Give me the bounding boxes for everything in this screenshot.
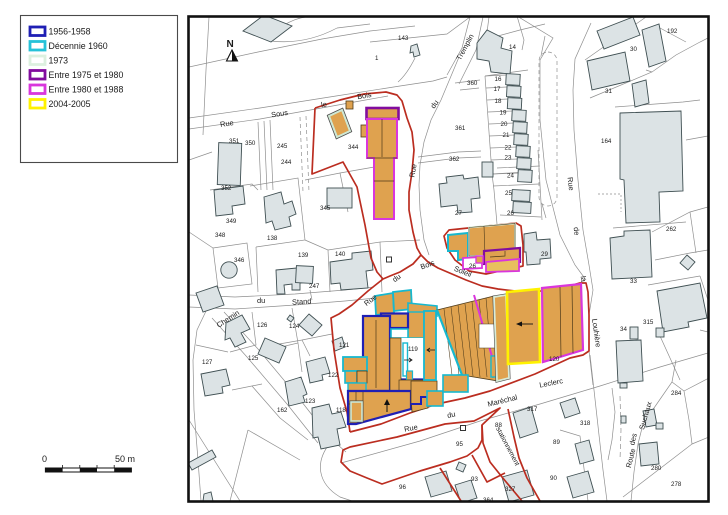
svg-text:245: 245 (277, 143, 288, 150)
svg-text:315: 315 (643, 319, 654, 326)
svg-text:du: du (257, 296, 265, 305)
svg-text:362: 362 (449, 156, 460, 163)
svg-text:16: 16 (495, 76, 502, 83)
svg-text:1973: 1973 (49, 56, 69, 66)
svg-text:N: N (227, 39, 234, 50)
svg-text:21: 21 (503, 132, 510, 139)
svg-text:348: 348 (215, 232, 226, 239)
svg-text:318: 318 (580, 420, 591, 427)
svg-text:le: le (320, 100, 327, 110)
svg-text:du: du (428, 98, 440, 110)
svg-text:20: 20 (501, 121, 508, 128)
svg-text:18: 18 (495, 98, 502, 105)
svg-text:164: 164 (601, 138, 612, 145)
svg-text:361: 361 (455, 125, 466, 132)
svg-text:27: 27 (455, 210, 462, 217)
svg-text:118: 118 (336, 407, 346, 414)
svg-text:247: 247 (309, 283, 320, 290)
svg-text:127: 127 (202, 359, 213, 366)
svg-text:24: 24 (507, 173, 514, 180)
svg-text:22: 22 (505, 145, 512, 152)
svg-text:du: du (391, 272, 403, 284)
svg-text:352: 352 (221, 185, 232, 192)
svg-text:345: 345 (320, 205, 331, 212)
svg-text:Louhière: Louhière (590, 318, 603, 348)
svg-text:Sous: Sous (270, 108, 288, 120)
svg-text:Rue: Rue (219, 118, 234, 129)
svg-text:126: 126 (257, 322, 268, 329)
svg-text:Rue: Rue (407, 163, 418, 178)
svg-text:Maréchal: Maréchal (487, 393, 519, 409)
svg-text:96: 96 (399, 484, 406, 491)
svg-text:26: 26 (507, 210, 514, 217)
svg-text:138: 138 (267, 235, 278, 242)
svg-text:327: 327 (505, 486, 516, 493)
svg-text:284: 284 (671, 390, 682, 397)
svg-text:17: 17 (494, 86, 501, 93)
svg-text:119: 119 (408, 346, 418, 353)
svg-text:1956-1958: 1956-1958 (49, 27, 91, 37)
svg-text:123: 123 (305, 398, 316, 405)
svg-text:Stand: Stand (292, 297, 312, 307)
svg-text:350: 350 (245, 140, 256, 147)
svg-text:89: 89 (553, 439, 560, 446)
svg-text:143: 143 (398, 35, 409, 42)
svg-text:29: 29 (541, 251, 548, 258)
svg-text:Route: Route (624, 447, 638, 468)
svg-text:2004-2005: 2004-2005 (49, 99, 91, 109)
svg-text:278: 278 (671, 481, 682, 488)
svg-text:23: 23 (505, 155, 512, 162)
svg-text:192: 192 (667, 28, 678, 35)
svg-text:122: 122 (328, 372, 339, 379)
svg-text:244: 244 (281, 159, 292, 166)
svg-text:93: 93 (471, 476, 478, 483)
svg-text:34: 34 (620, 326, 627, 333)
svg-text:125: 125 (248, 355, 259, 362)
svg-text:124: 124 (289, 323, 300, 330)
svg-text:346: 346 (234, 257, 245, 264)
svg-text:1: 1 (375, 55, 379, 62)
svg-text:0: 0 (42, 454, 47, 464)
svg-text:120: 120 (549, 356, 560, 363)
svg-text:Bois: Bois (419, 258, 436, 271)
svg-text:25: 25 (505, 190, 512, 197)
svg-text:Entre 1975 et 1980: Entre 1975 et 1980 (49, 70, 124, 80)
svg-text:Décennie 1960: Décennie 1960 (49, 41, 108, 51)
svg-text:90: 90 (550, 475, 557, 482)
svg-text:344: 344 (348, 144, 359, 151)
svg-text:19: 19 (500, 110, 507, 117)
svg-text:Leclerc: Leclerc (538, 376, 563, 389)
svg-text:121: 121 (339, 342, 350, 349)
svg-text:50 m: 50 m (115, 454, 135, 464)
svg-text:Entre 1980 et 1988: Entre 1980 et 1988 (49, 85, 124, 95)
svg-text:du: du (446, 409, 456, 420)
svg-text:351: 351 (229, 138, 240, 145)
svg-text:31: 31 (605, 88, 612, 95)
svg-text:26: 26 (469, 263, 476, 270)
svg-text:140: 140 (335, 251, 346, 258)
svg-text:des: des (627, 432, 639, 446)
svg-text:349: 349 (226, 218, 237, 225)
svg-text:la: la (579, 276, 589, 284)
svg-text:33: 33 (630, 278, 637, 285)
svg-text:317: 317 (527, 406, 538, 413)
svg-text:14: 14 (509, 44, 516, 51)
svg-text:162: 162 (277, 407, 288, 414)
svg-text:280: 280 (651, 465, 662, 472)
svg-text:Rue: Rue (566, 177, 577, 192)
svg-text:30: 30 (630, 46, 637, 53)
svg-text:139: 139 (298, 252, 309, 259)
svg-text:de: de (572, 227, 582, 236)
svg-text:262: 262 (666, 226, 677, 233)
svg-text:88: 88 (495, 422, 502, 429)
svg-text:95: 95 (456, 441, 463, 448)
svg-text:360: 360 (467, 80, 478, 87)
